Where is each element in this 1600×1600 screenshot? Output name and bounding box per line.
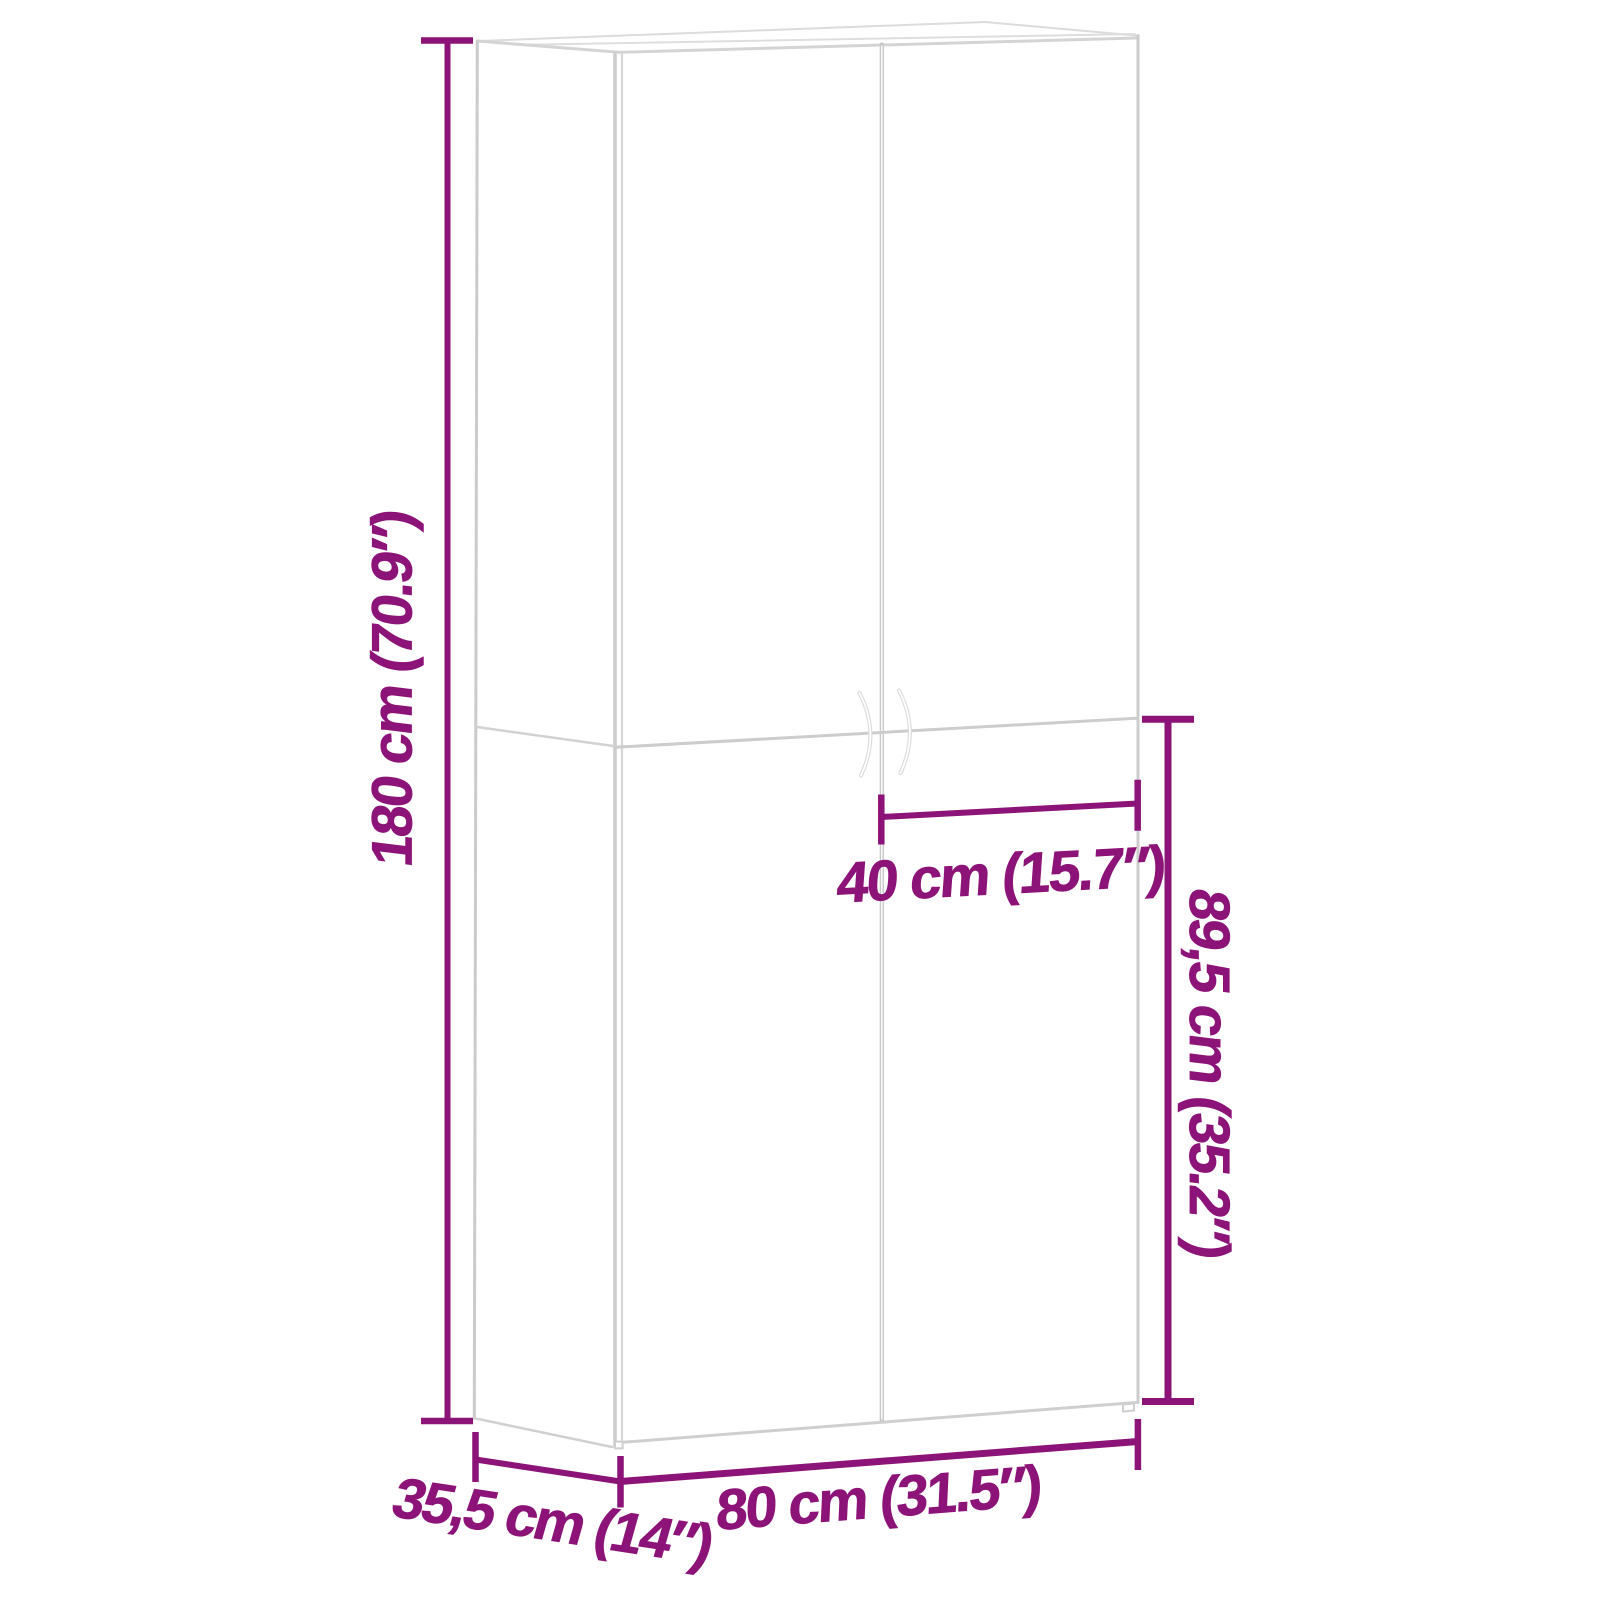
svg-text:180 cm (70.9″): 180 cm (70.9″) xyxy=(361,507,425,869)
svg-text:89,5 cm (35.2″): 89,5 cm (35.2″) xyxy=(1177,885,1241,1261)
